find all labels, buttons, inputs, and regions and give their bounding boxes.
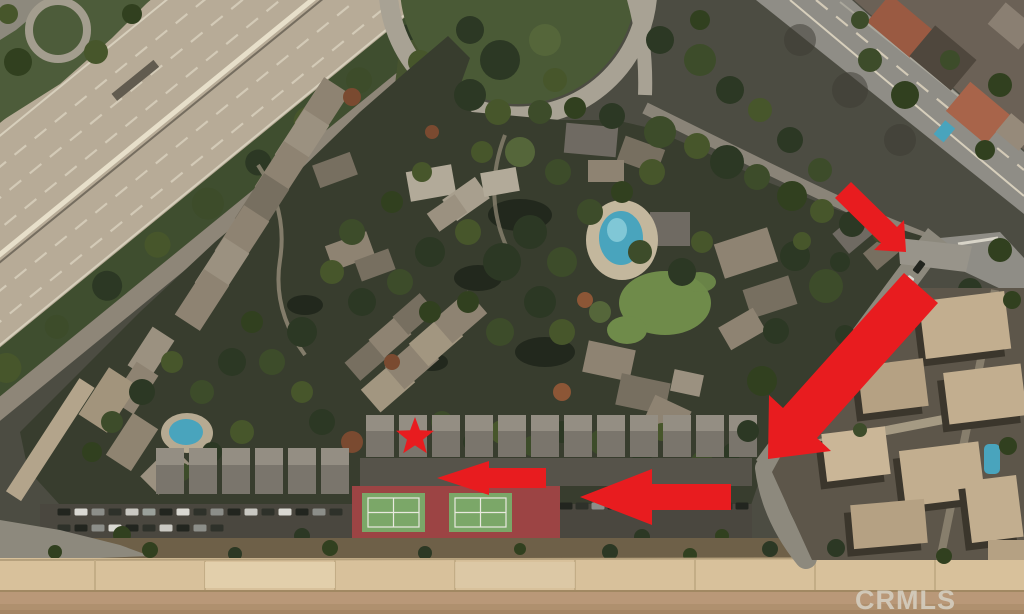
driveway <box>360 458 752 486</box>
crmls-watermark: CRMLS <box>855 585 956 614</box>
swimming-pool-west <box>169 419 203 445</box>
swimming-pool-right-complex <box>984 444 1000 474</box>
aerial-photo: CRMLS <box>0 0 1024 614</box>
tennis-courts <box>352 486 560 538</box>
satellite-image: CRMLS <box>0 0 1024 614</box>
townhouse-row-east <box>360 415 757 486</box>
lawn <box>607 316 647 344</box>
